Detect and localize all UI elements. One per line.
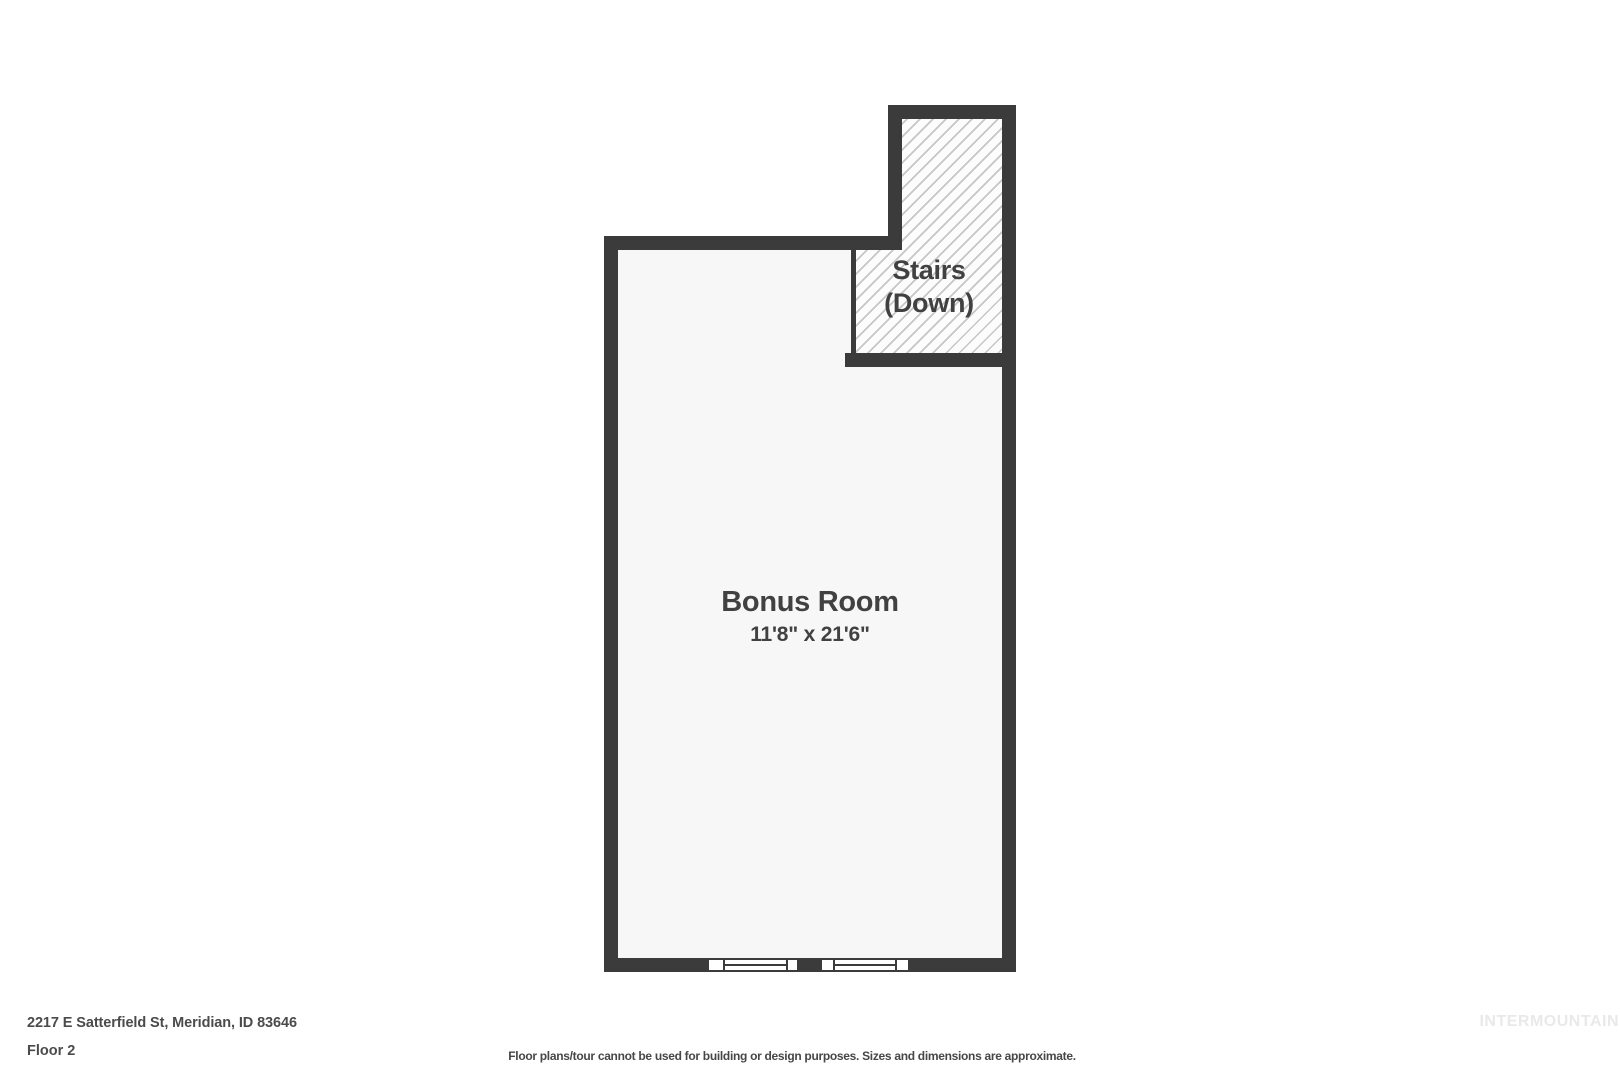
- wall-stairs-upper-left: [888, 105, 902, 250]
- disclaimer-text: Floor plans/tour cannot be used for buil…: [0, 1049, 1584, 1063]
- stairs-label-line1: Stairs: [856, 254, 1002, 287]
- floorplan-page: Stairs (Down) Bonus Room 11'8" x 21'6" 2…: [0, 0, 1620, 1080]
- wall-right: [1002, 105, 1016, 972]
- window-symbol-left: [709, 958, 797, 972]
- window-glass-icon: [833, 960, 897, 970]
- stairs-label-line2: (Down): [856, 287, 1002, 320]
- stairs-label: Stairs (Down): [856, 254, 1002, 320]
- intermountain-watermark: INTERMOUNTAIN: [1479, 1013, 1619, 1031]
- wall-stairs-bottom: [845, 353, 1016, 367]
- room-name: Bonus Room: [618, 584, 1002, 620]
- wall-main-top: [604, 236, 902, 250]
- bonus-room-label: Bonus Room 11'8" x 21'6": [618, 584, 1002, 649]
- background-patch: [856, 119, 888, 236]
- wall-stairs-top: [888, 105, 1016, 119]
- room-dimensions: 11'8" x 21'6": [618, 620, 1002, 649]
- window-symbol-right: [822, 958, 908, 972]
- wall-main-bottom: [604, 958, 1016, 972]
- window-glass-icon: [723, 960, 788, 970]
- property-address: 2217 E Satterfield St, Meridian, ID 8364…: [27, 1015, 297, 1031]
- wall-main-left: [604, 236, 618, 972]
